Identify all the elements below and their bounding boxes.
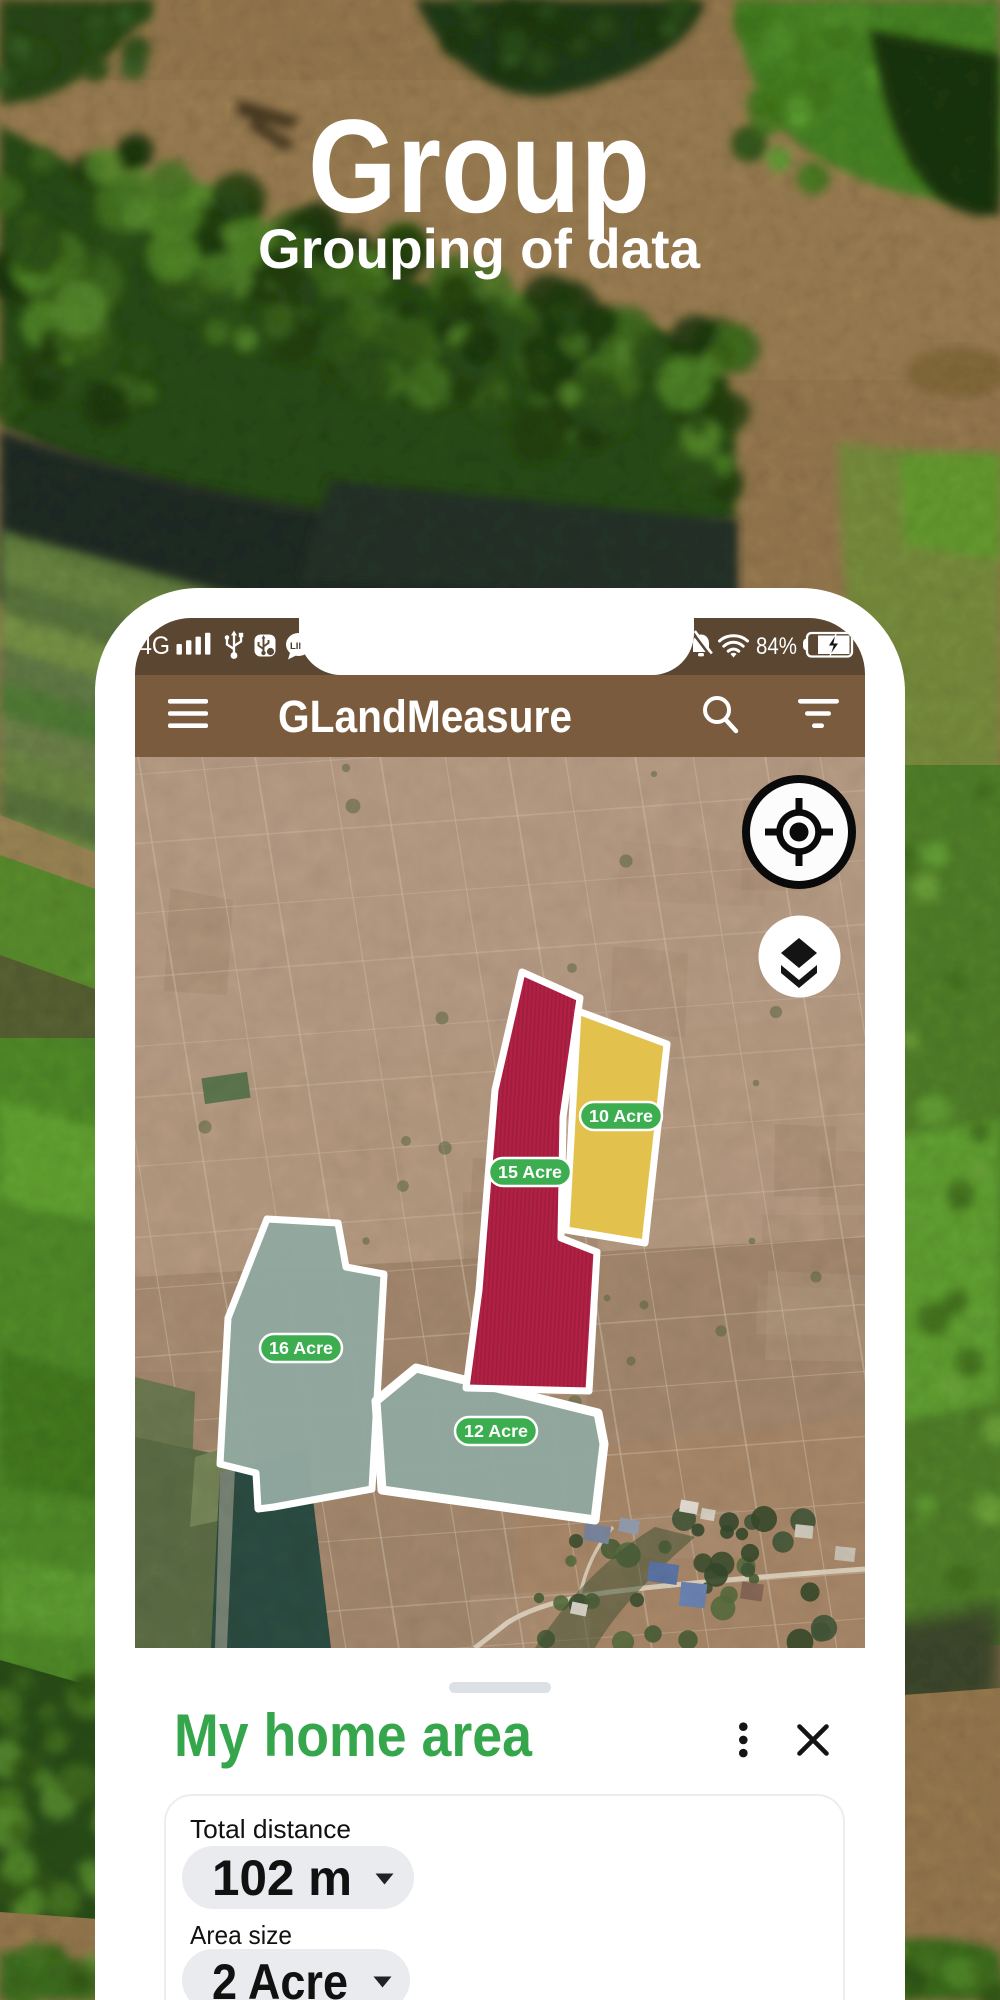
svg-text:GLandMeasure: GLandMeasure [278,691,572,742]
svg-text:Grouping of data: Grouping of data [258,217,701,280]
svg-text:84%: 84% [756,633,797,660]
svg-text:4G: 4G [139,632,170,660]
svg-text:2 Acre: 2 Acre [212,1954,348,2000]
svg-text:15 Acre: 15 Acre [498,1162,562,1182]
svg-text:My home area: My home area [174,1702,533,1769]
svg-text:10 Acre: 10 Acre [589,1106,653,1126]
svg-text:Total distance: Total distance [190,1814,351,1844]
svg-text:12 Acre: 12 Acre [464,1421,528,1441]
svg-text:Area size: Area size [190,1920,292,1950]
svg-text:16 Acre: 16 Acre [269,1338,333,1358]
svg-text:102 m: 102 m [212,1850,352,1906]
